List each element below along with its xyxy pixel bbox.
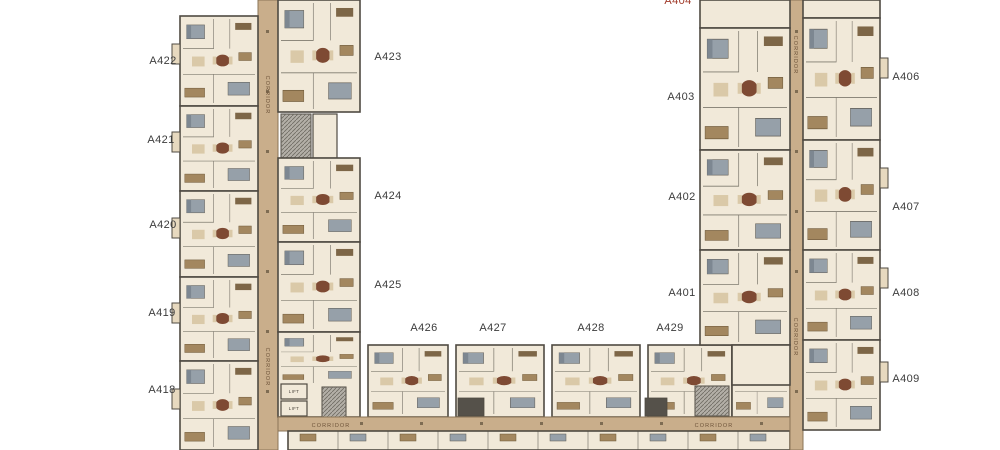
unit-label-a421: A421 [147, 134, 174, 146]
unit-a403 [700, 28, 790, 150]
unit-a420 [180, 191, 258, 277]
staircase-bottom-right [695, 386, 729, 416]
corridor-label: CORRIDOR [312, 423, 351, 429]
unit-a406 [803, 18, 880, 140]
unit-a418 [180, 361, 258, 450]
unit-a423 [278, 0, 360, 112]
corridor-label: CORRIDOR [695, 423, 734, 429]
right-wing-top-partial-unit-2 [803, 0, 880, 18]
unit-label-a424: A424 [374, 190, 401, 202]
unit-a425 [278, 242, 360, 332]
unit-label-a418: A418 [148, 384, 175, 396]
unit-a409 [803, 340, 880, 430]
unit-label-a409: A409 [892, 373, 919, 385]
corridor-label: CORRIDOR [792, 318, 798, 357]
unit-a426 [368, 345, 448, 417]
floor-plan-page: LIFT LIFT [0, 0, 1000, 450]
unit-label-a403: A403 [667, 91, 694, 103]
unit-label-a426: A426 [410, 322, 437, 334]
unit-label-a429: A429 [656, 322, 683, 334]
unit-a407 [803, 140, 880, 250]
unit-a421 [180, 106, 258, 191]
unit-label-a425: A425 [374, 279, 401, 291]
corridor-label: CORRIDOR [264, 348, 270, 387]
unit-a424 [278, 158, 360, 242]
corridor-label: CORRIDOR [264, 76, 270, 115]
unit-label-a406: A406 [892, 71, 919, 83]
lift-label: LIFT [289, 389, 299, 394]
right-wing-balconies [880, 58, 888, 382]
unit-a401 [700, 250, 790, 345]
right-wing-top-partial-unit [700, 0, 790, 28]
service-duct [458, 398, 484, 416]
unit-a419 [180, 277, 258, 361]
unit-label-a428: A428 [577, 322, 604, 334]
unit-a402 [700, 150, 790, 250]
service-duct [645, 398, 667, 416]
staircase-left-bottom [322, 387, 346, 417]
bottom-lower-row [288, 431, 790, 450]
unit-label-a407: A407 [892, 201, 919, 213]
unit-label-a420: A420 [149, 219, 176, 231]
unit-label-a422: A422 [149, 55, 176, 67]
unit-label-a404-partial: A404 [664, 0, 691, 7]
unit-label-a408: A408 [892, 287, 919, 299]
lift-label: LIFT [289, 406, 299, 411]
unit-a408 [803, 250, 880, 340]
floor-plan: LIFT LIFT [0, 0, 1000, 450]
corridor-label: CORRIDOR [792, 36, 798, 75]
unit-label-a402: A402 [668, 191, 695, 203]
unit-label-a401: A401 [668, 287, 695, 299]
unit-a428 [552, 345, 640, 417]
unit-label-a427: A427 [479, 322, 506, 334]
unit-label-a419: A419 [148, 307, 175, 319]
unit-label-a423: A423 [374, 51, 401, 63]
staircase-left-top [281, 114, 337, 158]
right-wing-service-block [732, 345, 790, 385]
unit-a422 [180, 16, 258, 106]
